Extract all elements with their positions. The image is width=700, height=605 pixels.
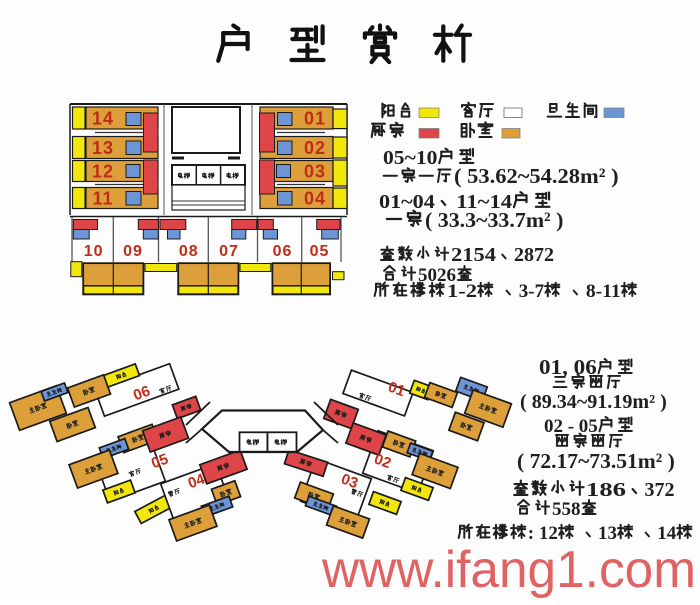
svg-text:10: 10 <box>84 243 104 260</box>
svg-text:04: 04 <box>304 189 326 209</box>
svg-text:03: 03 <box>304 162 326 182</box>
svg-text:372: 372 <box>645 479 675 501</box>
svg-text:05~10: 05~10 <box>383 148 437 169</box>
svg-text:3-7: 3-7 <box>519 281 545 302</box>
svg-text:8-11: 8-11 <box>586 281 621 302</box>
svg-text:06: 06 <box>273 243 293 260</box>
svg-text:( 33.3~33.7m² ): ( 33.3~33.7m² ) <box>425 208 563 232</box>
svg-text:13: 13 <box>92 138 114 158</box>
svg-text:2872: 2872 <box>514 244 554 266</box>
svg-text:09: 09 <box>123 243 143 260</box>
svg-text:558: 558 <box>552 499 581 520</box>
svg-text:07: 07 <box>219 243 239 260</box>
svg-text:11: 11 <box>92 189 113 209</box>
svg-text:08: 08 <box>179 243 199 260</box>
svg-text:12: 12 <box>92 162 114 182</box>
svg-text:www.ifang1.com: www.ifang1.com <box>321 541 696 599</box>
svg-text:( 89.34~91.19m² ): ( 89.34~91.19m² ) <box>520 391 667 413</box>
svg-text:02 - 05: 02 - 05 <box>544 416 598 437</box>
svg-text:( 53.62~54.28m² ): ( 53.62~54.28m² ) <box>454 164 619 188</box>
svg-text:02: 02 <box>304 138 326 158</box>
svg-text:2154: 2154 <box>451 244 496 266</box>
svg-text:186: 186 <box>586 479 626 501</box>
svg-text:01, 06: 01, 06 <box>539 355 597 379</box>
svg-text:14: 14 <box>92 109 114 129</box>
svg-text:1-2: 1-2 <box>447 281 477 302</box>
svg-text:( 72.17~73.51m² ): ( 72.17~73.51m² ) <box>517 449 675 473</box>
svg-text:01: 01 <box>304 109 326 129</box>
svg-text:05: 05 <box>310 243 330 260</box>
